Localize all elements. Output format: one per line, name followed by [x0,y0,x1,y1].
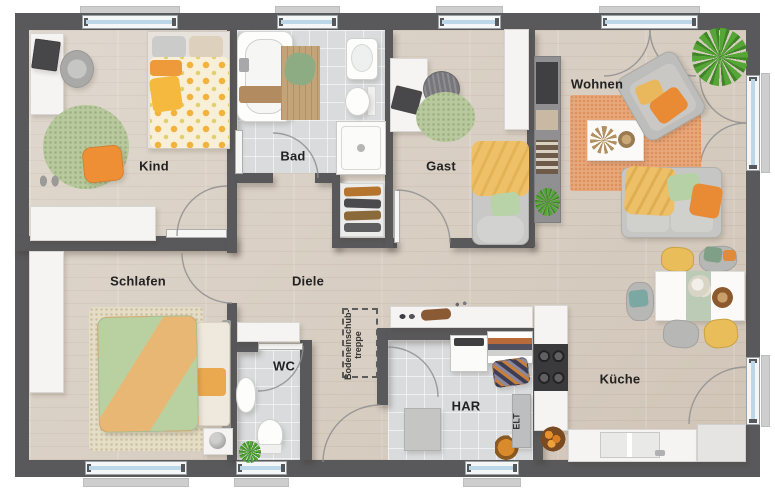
dining-chair-yellow [660,246,694,273]
kind-blanket-yellow [149,75,183,113]
window-glass [751,79,755,167]
bad-toilet [345,87,370,116]
daybed-cushion [477,216,524,243]
elt-label: ELT [513,395,532,449]
bench-shoes [396,310,418,323]
french-window-wohnen [601,15,698,29]
wc-sink [236,377,256,413]
window-glass [605,20,694,24]
window-glass [89,466,183,470]
schlafen-lamp [209,432,226,449]
window-wc [236,461,287,475]
room-label-kueche: Küche [600,372,641,387]
window-glass [469,466,515,470]
terrace-door [746,75,760,171]
window-glass [442,20,497,24]
bad-radiator [235,130,243,174]
wall-wc-east [300,340,312,460]
bookshelf-books [536,140,558,174]
wc-toilet-tank [258,444,282,454]
deco-bowl [618,131,635,148]
room-label-bad: Bad [280,149,305,164]
fruit-basket [539,425,567,453]
gast-rug [416,92,475,142]
daybed-blanket-yellow [472,141,529,196]
daybed-pillow-green [490,191,522,217]
wall-shower-west [332,173,340,248]
attic-stairs-box: Bodeneinschub- treppe [342,308,378,378]
window-har [465,461,519,475]
window-bad [277,15,338,29]
room-label-schlafen: Schlafen [110,274,166,289]
window-sill [83,478,189,487]
kind-cushion-orange [150,60,182,76]
schlafen-wardrobe [29,251,64,393]
room-label-wc: WC [273,359,295,374]
bad-sink-bowl [351,44,373,72]
gast-door-leaf [394,190,400,243]
laundry-basket [491,357,530,389]
chair-towel-orange [723,250,736,261]
door-sill [761,73,770,173]
storage-box [404,408,441,451]
kind-pillow [189,36,223,58]
room-label-wohnen: Wohnen [571,77,623,92]
window-sill [463,478,521,487]
bench-skateboard [421,308,452,321]
shoe-row [344,210,381,220]
shower-drain [357,144,365,152]
window-gast [438,15,501,29]
kind-door-leaf [166,229,227,238]
room-label-diele: Diele [292,274,324,289]
floor-items [452,299,470,310]
kitchen-faucet [655,450,665,456]
gast-wardrobe [504,29,529,130]
room-label-gast: Gast [426,159,456,174]
window-kind [82,15,178,29]
wc-door-leaf [258,343,303,350]
kind-monitor [31,38,61,71]
kind-slippers [35,170,63,192]
window-schlafen [85,461,187,475]
attic-stairs-label: Bodeneinschub- treppe [344,310,380,380]
bookshelf-tv [536,62,558,104]
bathtub-faucet [239,58,249,72]
kind-pillow [152,36,186,58]
attic-stairs-line2: treppe [354,310,364,380]
palm-plant [692,28,748,86]
table-flowers [688,275,712,299]
window-glass [240,466,283,470]
elt-panel: ELT [512,394,531,448]
wall-bad-south-left [237,173,273,183]
window-sill [234,478,289,487]
window-glass [86,20,174,24]
cooktop [534,344,568,391]
sofa-pillow-orange [688,183,723,220]
dried-plant [590,126,617,154]
kitchen-cabinet-right [697,424,746,462]
dining-chair-gray [662,318,700,349]
shoe-row [344,198,381,208]
shoe-row [344,223,381,232]
room-label-har: HAR [452,399,481,414]
window-glass [281,20,334,24]
kind-desk-chair [60,50,94,88]
chair-towel-teal [628,289,649,308]
schlafen-duvet [97,315,199,433]
kitchen-sink [600,432,660,458]
window-glass [751,361,755,421]
washer-panel [454,338,484,346]
table-bowl [712,287,733,308]
chair-towel-green [703,246,723,263]
diele-cabinet [237,322,300,342]
shoe-row [344,186,381,196]
kitchen-exterior-door [746,357,760,425]
wc-plant [239,441,261,463]
kind-floor-pillow [81,144,125,184]
bookshelf-plant [535,188,560,216]
bookshelf-items [536,110,558,130]
floor-plan: Bodeneinschub- treppe ELT [0,0,775,493]
schlafen-pillow-orange [196,368,226,396]
kind-sideboard [30,206,156,241]
door-sill [761,355,770,427]
room-label-kind: Kind [139,159,169,174]
